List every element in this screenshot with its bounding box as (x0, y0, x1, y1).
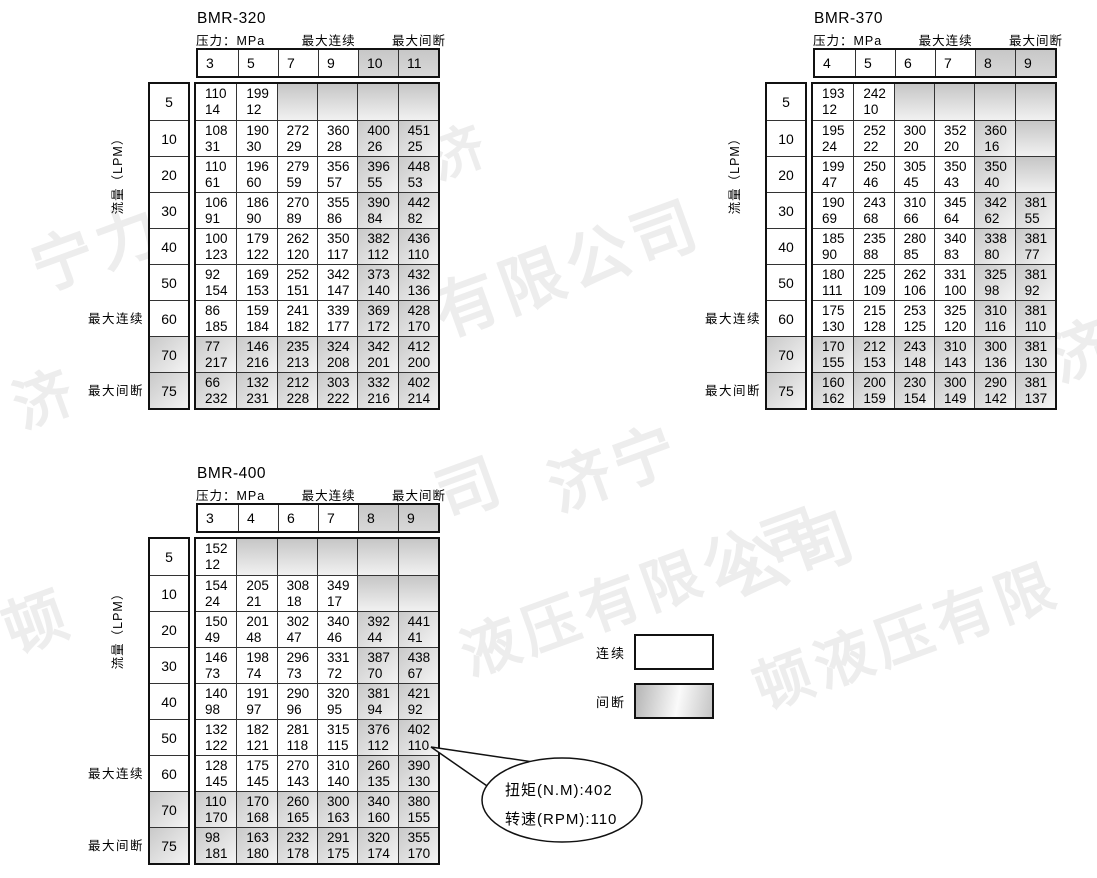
cell-value: 217 (205, 355, 236, 371)
cell-value: 18 (287, 594, 317, 610)
cell-value: 390 (408, 758, 438, 774)
cell-value: 47 (822, 175, 853, 191)
cell-value: 110 (205, 794, 236, 810)
cell-value: 110 (1025, 319, 1055, 335)
cell-value: 95 (327, 702, 357, 718)
cell-value: 16 (984, 139, 1014, 155)
data-cell: 260135 (357, 755, 397, 791)
cell-value: 130 (822, 319, 853, 335)
cell-value: 49 (205, 630, 236, 646)
cell-value: 112 (367, 738, 397, 754)
data-cell: 19660 (236, 156, 276, 192)
legend-continuous-swatch (634, 634, 714, 670)
data-cell: 29096 (277, 683, 317, 719)
flow-header-col: 51020304050607075 (148, 537, 190, 865)
cell-value: 170 (205, 810, 236, 826)
data-cell: 18590 (813, 228, 853, 264)
cell-value: 90 (246, 211, 276, 227)
cell-value: 216 (367, 391, 397, 407)
cell-value: 381 (1025, 375, 1055, 391)
data-cell: 241182 (277, 300, 317, 336)
flow-row-header: 20 (150, 156, 188, 192)
cell-value: 185 (822, 231, 853, 247)
data-cell: 31066 (894, 192, 934, 228)
cell-value: 155 (408, 810, 438, 826)
cell-value: 118 (287, 738, 317, 754)
data-cell: 30818 (277, 575, 317, 611)
cell-value: 68 (863, 211, 893, 227)
cell-value: 340 (944, 231, 974, 247)
cell-value: 381 (1025, 303, 1055, 319)
legend-continuous-label: 连续 (596, 643, 634, 662)
cell-value: 170 (408, 846, 438, 862)
cell-value: 331 (944, 267, 974, 283)
table-bmr-400: BMR-400 压力：MPa 最大连续 最大间断 346789 51020304… (60, 465, 460, 875)
data-cell: 381137 (1015, 372, 1055, 408)
data-cell: 44141 (398, 611, 438, 647)
cell-value: 179 (246, 231, 276, 247)
data-cell: 86185 (196, 300, 236, 336)
data-cell: 300136 (974, 336, 1014, 372)
data-cell: 260165 (277, 791, 317, 827)
pressure-axis-labels: 压力：MPa 最大连续 最大间断 (813, 30, 1063, 49)
data-cell: 291175 (317, 827, 357, 863)
cell-value: 325 (984, 267, 1014, 283)
data-cell (398, 539, 438, 575)
flow-row-header: 5 (150, 84, 188, 120)
cell-value: 200 (863, 375, 893, 391)
cell-value: 12 (205, 557, 236, 573)
cell-value: 110 (205, 159, 236, 175)
cell-value: 112 (367, 247, 397, 263)
cell-value: 342 (367, 339, 397, 355)
data-cell: 24368 (853, 192, 893, 228)
callout-ellipse (482, 758, 642, 842)
cell-value: 382 (367, 231, 397, 247)
flow-row-header: 50 (150, 264, 188, 300)
data-cell: 110170 (196, 791, 236, 827)
flow-row-header: 10 (767, 120, 805, 156)
cell-value: 340 (327, 614, 357, 630)
legend-intermittent-label: 间断 (596, 692, 634, 711)
data-cell: 19524 (813, 120, 853, 156)
cell-value: 14 (205, 102, 236, 118)
cell-value: 296 (287, 650, 317, 666)
max-continuous-label: 最大连续 (302, 485, 356, 504)
cell-value: 243 (863, 195, 893, 211)
cell-value: 85 (904, 247, 934, 263)
cell-value: 140 (367, 283, 397, 299)
cell-value: 185 (205, 319, 236, 335)
cell-value: 352 (944, 123, 974, 139)
cell-value: 140 (327, 774, 357, 790)
table-title: BMR-400 (197, 465, 266, 483)
cell-value: 110 (205, 86, 236, 102)
cell-value: 17 (327, 594, 357, 610)
data-cell: 175130 (813, 300, 853, 336)
cell-value: 390 (367, 195, 397, 211)
flow-row-header: 50 (150, 719, 188, 755)
cell-value: 55 (367, 175, 397, 191)
cell-value: 155 (822, 355, 853, 371)
pressure-col-header: 5 (238, 50, 278, 76)
cell-value: 262 (287, 231, 317, 247)
cell-value: 151 (287, 283, 317, 299)
data-cell: 432136 (398, 264, 438, 300)
cell-value: 96 (287, 702, 317, 718)
data-cell: 19197 (236, 683, 276, 719)
cell-value: 235 (863, 231, 893, 247)
cell-value: 356 (327, 159, 357, 175)
pressure-col-header: 9 (398, 505, 438, 531)
cell-value: 57 (327, 175, 357, 191)
flow-row-header: 50 (767, 264, 805, 300)
max-intermittent-row-label: 最大间断 (88, 380, 144, 399)
data-cell: 342147 (317, 264, 357, 300)
callout-torque-text: 扭矩(N.M):402 (505, 782, 613, 799)
pressure-unit-label: 压力：MPa (196, 485, 265, 504)
cell-value: 137 (1025, 391, 1055, 407)
cell-value: 120 (287, 247, 317, 263)
data-cell: 182121 (236, 719, 276, 755)
cell-value: 140 (205, 686, 236, 702)
data-cell: 175145 (236, 755, 276, 791)
cell-value: 74 (246, 666, 276, 682)
cell-value: 100 (944, 283, 974, 299)
cell-value: 153 (863, 355, 893, 371)
data-cell: 11061 (196, 156, 236, 192)
cell-value: 53 (408, 175, 438, 191)
cell-value: 310 (944, 339, 974, 355)
data-cell: 34262 (974, 192, 1014, 228)
cell-value: 373 (367, 267, 397, 283)
data-cell: 163180 (236, 827, 276, 863)
data-cell: 45125 (398, 120, 438, 156)
cell-value: 190 (822, 195, 853, 211)
data-cell: 369172 (357, 300, 397, 336)
cell-value: 26 (367, 139, 397, 155)
cell-value: 115 (327, 738, 357, 754)
cell-value: 235 (287, 339, 317, 355)
cell-value: 230 (904, 375, 934, 391)
data-cell: 325120 (934, 300, 974, 336)
cell-value: 303 (327, 375, 357, 391)
cell-value: 215 (863, 303, 893, 319)
cell-value: 331 (327, 650, 357, 666)
flow-row-header: 5 (767, 84, 805, 120)
cell-value: 380 (408, 794, 438, 810)
cell-value: 381 (1025, 231, 1055, 247)
data-cell: 179122 (236, 228, 276, 264)
cell-value: 88 (863, 247, 893, 263)
pressure-col-header: 10 (358, 50, 398, 76)
cell-value: 310 (984, 303, 1014, 319)
data-cell: 310140 (317, 755, 357, 791)
cell-value: 200 (408, 355, 438, 371)
cell-value: 184 (246, 319, 276, 335)
cell-value: 205 (246, 578, 276, 594)
flow-row-header: 20 (767, 156, 805, 192)
cell-value: 281 (287, 722, 317, 738)
data-cell: 212153 (853, 336, 893, 372)
cell-value: 67 (408, 666, 438, 682)
data-cell: 38192 (1015, 264, 1055, 300)
data-cell: 315115 (317, 719, 357, 755)
cell-value: 98 (984, 283, 1014, 299)
data-cell: 300149 (934, 372, 974, 408)
data-cell: 331100 (934, 264, 974, 300)
data-cell: 25222 (853, 120, 893, 156)
data-cell (1015, 120, 1055, 156)
cell-value: 199 (246, 86, 276, 102)
cell-value: 98 (205, 830, 236, 846)
cell-value: 128 (205, 758, 236, 774)
cell-value: 175 (822, 303, 853, 319)
table-bmr-320: BMR-320 压力：MPa 最大连续 最大间断 35791011 510203… (60, 10, 460, 420)
flow-row-header: 60 (767, 300, 805, 336)
cell-value: 152 (205, 541, 236, 557)
cell-value: 66 (205, 375, 236, 391)
cell-value: 412 (408, 339, 438, 355)
data-cell: 230154 (894, 372, 934, 408)
data-cell: 29673 (277, 647, 317, 683)
cell-value: 260 (367, 758, 397, 774)
pressure-col-header: 7 (318, 505, 358, 531)
data-cell: 355170 (398, 827, 438, 863)
cell-value: 170 (408, 319, 438, 335)
data-cell: 33172 (317, 647, 357, 683)
cell-value: 91 (205, 211, 236, 227)
data-cell: 18690 (236, 192, 276, 228)
data-cell: 180111 (813, 264, 853, 300)
flow-row-header: 30 (767, 192, 805, 228)
data-cell: 43867 (398, 647, 438, 683)
cell-value: 310 (904, 195, 934, 211)
cell-value: 150 (205, 614, 236, 630)
data-cell (357, 84, 397, 120)
cell-value: 111 (822, 283, 853, 299)
data-cell: 30545 (894, 156, 934, 192)
cell-value: 428 (408, 303, 438, 319)
data-cell: 66232 (196, 372, 236, 408)
data-cell: 132231 (236, 372, 276, 408)
data-cell: 128145 (196, 755, 236, 791)
cell-value: 201 (367, 355, 397, 371)
cell-value: 350 (984, 159, 1014, 175)
cell-value: 136 (408, 283, 438, 299)
cell-value: 97 (246, 702, 276, 718)
data-cell: 92154 (196, 264, 236, 300)
data-cell: 170155 (813, 336, 853, 372)
cell-value: 82 (408, 211, 438, 227)
data-cell: 24210 (853, 84, 893, 120)
data-cell: 27959 (277, 156, 317, 192)
pressure-col-header: 6 (895, 50, 935, 76)
data-cell: 376112 (357, 719, 397, 755)
cell-value: 72 (327, 666, 357, 682)
flow-row-header: 60 (150, 755, 188, 791)
cell-value: 402 (408, 375, 438, 391)
cell-value: 142 (984, 391, 1014, 407)
data-cell: 253125 (894, 300, 934, 336)
pressure-unit-label: 压力：MPa (196, 30, 265, 49)
data-cell: 39084 (357, 192, 397, 228)
data-cell: 11014 (196, 84, 236, 120)
cell-value: 89 (287, 211, 317, 227)
data-cell: 169153 (236, 264, 276, 300)
cell-value: 154 (205, 578, 236, 594)
cell-value: 241 (287, 303, 317, 319)
cell-value: 212 (287, 375, 317, 391)
data-cell: 19947 (813, 156, 853, 192)
cell-value: 270 (287, 195, 317, 211)
data-cell: 10831 (196, 120, 236, 156)
cell-value: 121 (246, 738, 276, 754)
data-cell (1015, 84, 1055, 120)
legend: 连续 间断 (596, 634, 714, 732)
max-intermittent-label: 最大间断 (1009, 30, 1063, 49)
cell-value: 369 (367, 303, 397, 319)
data-cell: 28085 (894, 228, 934, 264)
cell-value: 302 (287, 614, 317, 630)
pressure-col-header: 7 (278, 50, 318, 76)
cell-value: 360 (984, 123, 1014, 139)
data-cell: 212228 (277, 372, 317, 408)
cell-value: 320 (327, 686, 357, 702)
cell-value: 250 (863, 159, 893, 175)
cell-value: 143 (287, 774, 317, 790)
cell-value: 132 (205, 722, 236, 738)
data-cell: 342201 (357, 336, 397, 372)
cell-value: 290 (984, 375, 1014, 391)
cell-value: 45 (904, 175, 934, 191)
data-cell: 34564 (934, 192, 974, 228)
cell-value: 117 (327, 247, 357, 263)
cell-value: 165 (287, 810, 317, 826)
data-cell (934, 84, 974, 120)
data-cell: 243148 (894, 336, 934, 372)
cell-value: 48 (246, 630, 276, 646)
pressure-col-header: 7 (935, 50, 975, 76)
legend-row-intermittent: 间断 (596, 683, 714, 719)
data-cell: 402214 (398, 372, 438, 408)
data-cell: 252151 (277, 264, 317, 300)
data-cell: 232178 (277, 827, 317, 863)
cell-value: 300 (327, 794, 357, 810)
cell-value: 83 (944, 247, 974, 263)
cell-value: 186 (246, 195, 276, 211)
data-cell: 34917 (317, 575, 357, 611)
pressure-col-header: 4 (815, 50, 855, 76)
cell-value: 436 (408, 231, 438, 247)
cell-value: 30 (246, 139, 276, 155)
cell-value: 170 (246, 794, 276, 810)
cell-value: 191 (246, 686, 276, 702)
cell-value: 146 (246, 339, 276, 355)
cell-value: 12 (822, 102, 853, 118)
data-cell: 42192 (398, 683, 438, 719)
flow-header-col: 51020304050607075 (148, 82, 190, 410)
cell-value: 252 (863, 123, 893, 139)
pressure-col-header: 8 (358, 505, 398, 531)
cell-value: 163 (327, 810, 357, 826)
data-cell: 23588 (853, 228, 893, 264)
data-cell: 35657 (317, 156, 357, 192)
data-cell: 146216 (236, 336, 276, 372)
table-title: BMR-320 (197, 10, 266, 28)
cell-value: 154 (205, 283, 236, 299)
cell-value: 441 (408, 614, 438, 630)
cell-value: 178 (287, 846, 317, 862)
cell-value: 242 (863, 86, 893, 102)
cell-value: 305 (904, 159, 934, 175)
data-cell (317, 84, 357, 120)
cell-value: 106 (904, 283, 934, 299)
legend-row-continuous: 连续 (596, 634, 714, 670)
cell-value: 180 (822, 267, 853, 283)
cell-value: 84 (367, 211, 397, 227)
data-cell (398, 575, 438, 611)
cell-value: 122 (205, 738, 236, 754)
cell-value: 392 (367, 614, 397, 630)
cell-value: 448 (408, 159, 438, 175)
catalog-page: 宁力 济 有限公司 济宁 公司 液压有限公司 顿液压有限 顿 济 司 济 BMR… (0, 0, 1097, 878)
cell-value: 12 (246, 102, 276, 118)
cell-value: 381 (1025, 195, 1055, 211)
cell-value: 145 (246, 774, 276, 790)
cell-value: 300 (984, 339, 1014, 355)
cell-value: 400 (367, 123, 397, 139)
cell-value: 232 (205, 391, 236, 407)
pressure-col-header: 3 (198, 50, 238, 76)
flow-row-header: 20 (150, 611, 188, 647)
cell-value: 20 (944, 139, 974, 155)
data-cell (357, 575, 397, 611)
data-cell: 402110 (398, 719, 438, 755)
cell-value: 92 (205, 267, 236, 283)
data-cell: 290142 (974, 372, 1014, 408)
data-cell (974, 84, 1014, 120)
data-cell: 350117 (317, 228, 357, 264)
data-cell: 39655 (357, 156, 397, 192)
pressure-col-header: 8 (975, 50, 1015, 76)
pressure-unit-label: 压力：MPa (813, 30, 882, 49)
cell-value: 260 (287, 794, 317, 810)
data-cell: 262120 (277, 228, 317, 264)
cell-value: 46 (863, 175, 893, 191)
data-cell: 100123 (196, 228, 236, 264)
cell-value: 339 (327, 303, 357, 319)
flow-row-header: 40 (150, 228, 188, 264)
cell-value: 120 (944, 319, 974, 335)
pressure-col-header: 4 (238, 505, 278, 531)
cell-value: 10 (863, 102, 893, 118)
cell-value: 153 (246, 283, 276, 299)
cell-value: 174 (367, 846, 397, 862)
data-cell: 324208 (317, 336, 357, 372)
legend-intermittent-swatch (634, 683, 714, 719)
data-cell: 320174 (357, 827, 397, 863)
data-cell: 32095 (317, 683, 357, 719)
cell-value: 25 (408, 139, 438, 155)
cell-value: 132 (246, 375, 276, 391)
data-cell: 30247 (277, 611, 317, 647)
flow-row-header: 40 (767, 228, 805, 264)
cell-value: 376 (367, 722, 397, 738)
cell-value: 162 (822, 391, 853, 407)
pressure-axis-labels: 压力：MPa 最大连续 最大间断 (196, 30, 446, 49)
data-grid: 1931224210195242522230020352203601619947… (811, 82, 1057, 410)
